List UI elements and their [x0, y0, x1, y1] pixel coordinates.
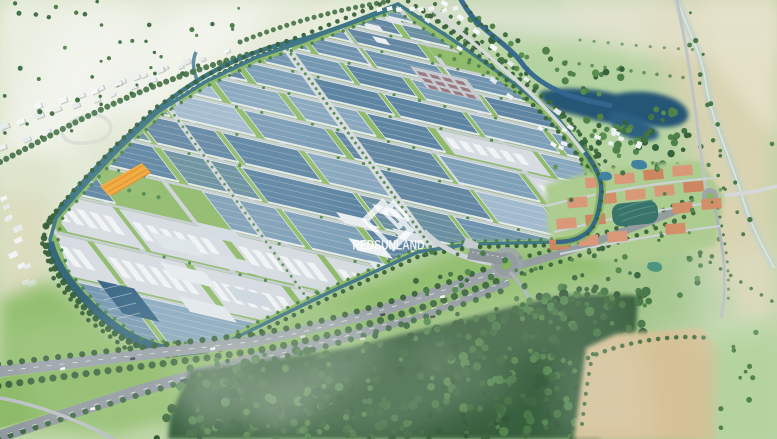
svg-text:INDUSTRIAL REAL ESTATE: INDUSTRIAL REAL ESTATE — [374, 253, 404, 257]
svg-text:REDSUNLAND: REDSUNLAND — [353, 238, 425, 253]
